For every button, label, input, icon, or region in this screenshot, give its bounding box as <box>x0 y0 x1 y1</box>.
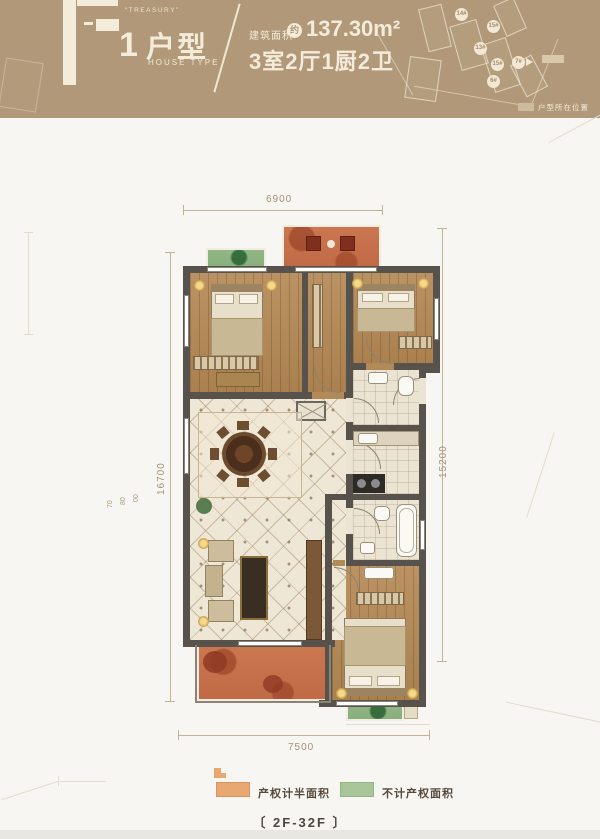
sketch-line <box>506 702 600 724</box>
sketch-line <box>548 114 600 143</box>
unit-index: 1 <box>119 26 138 65</box>
siteplan-building <box>493 0 527 37</box>
dim-left-seg: 00 <box>133 494 140 502</box>
balcony-plant <box>203 651 227 673</box>
unit-type-en: HOUSE TYPE <box>148 58 219 67</box>
balcony-chair <box>306 236 321 251</box>
sofa <box>205 565 223 597</box>
window <box>420 520 425 550</box>
nightstand-lamp <box>194 280 205 291</box>
siteplan-building <box>404 56 442 102</box>
dim-tick <box>165 252 175 253</box>
siteplan-building <box>0 57 44 112</box>
bed-blanket <box>357 308 415 332</box>
tv-cabinet <box>306 540 322 640</box>
building-label-6: 6# <box>487 75 500 88</box>
toilet <box>398 376 414 396</box>
dim-tick <box>437 661 447 662</box>
balcony-plant <box>263 675 283 693</box>
window <box>336 701 398 706</box>
dim-bottom-label: 7500 <box>288 742 314 753</box>
balcony-chair <box>340 236 355 251</box>
ac-platform <box>404 705 418 719</box>
highlight-swatch <box>542 55 564 63</box>
sketch-line <box>346 724 430 725</box>
dim-left-label: 16700 <box>156 462 167 495</box>
sketch-line <box>1 781 58 800</box>
bed-pillow <box>215 294 234 304</box>
dim-tick <box>165 701 175 702</box>
window <box>207 267 267 272</box>
dim-left-seg: 70 <box>107 500 114 508</box>
siteplan-inset: 14# 15# 13# 15# 7# 6# 户型所在位置 <box>395 0 600 118</box>
door-gap <box>312 392 344 399</box>
wardrobe-master <box>356 592 404 605</box>
building-label-7: 7# <box>512 56 525 69</box>
nightstand-lamp <box>352 278 363 289</box>
plant <box>196 498 212 514</box>
bed-pillow <box>239 294 258 304</box>
window <box>434 298 439 340</box>
armchair <box>208 540 234 562</box>
bathtub-inner <box>399 508 414 553</box>
building-label-13: 13# <box>474 42 487 55</box>
door-gap <box>346 508 353 534</box>
dim-tick <box>429 730 430 740</box>
kitchen-sink <box>358 433 378 444</box>
sketch-line <box>60 781 106 782</box>
dim-tick <box>437 228 447 229</box>
bed-master <box>344 618 406 696</box>
dining-table <box>222 432 266 476</box>
legend-step-icon <box>214 773 226 778</box>
sketch-line <box>24 334 33 335</box>
bed-headboard <box>211 284 263 292</box>
stove-burner <box>357 479 366 488</box>
vanity <box>364 567 394 579</box>
legend-orange-label: 产权计半面积 <box>258 785 330 801</box>
divider-slash <box>213 4 240 93</box>
bed-headboard <box>357 284 415 291</box>
bed-pillow <box>349 676 372 686</box>
dim-top-label: 6900 <box>266 194 292 205</box>
dining-chair <box>210 448 219 460</box>
bed-blanket <box>211 318 263 356</box>
logo-bar <box>84 22 93 25</box>
bed-topright <box>357 284 415 332</box>
location-legend-swatch <box>518 103 534 111</box>
logo-bar <box>96 19 119 31</box>
dim-line-left <box>170 252 171 702</box>
header-banner: F “TREASURY” 1 户型 HOUSE TYPE 建筑面积 约 137.… <box>0 0 600 118</box>
balcony-slider-window <box>238 641 302 646</box>
approx-badge: 约 <box>287 23 302 38</box>
sketch-line <box>28 232 29 334</box>
siteplan-building <box>418 4 452 52</box>
bed-topleft <box>211 284 263 356</box>
area-value: 137.30m² <box>306 16 400 42</box>
dim-tick <box>183 205 184 215</box>
legend-green-swatch <box>340 782 374 797</box>
balcony-table <box>327 240 335 248</box>
stove <box>353 474 385 493</box>
door-gap <box>366 363 394 370</box>
bed-blanket <box>344 626 406 666</box>
bed-pillow <box>362 293 383 302</box>
bed-pillow <box>377 676 400 686</box>
building-label-15b: 15# <box>491 58 504 71</box>
desk <box>216 372 260 387</box>
nightstand-lamp <box>418 278 429 289</box>
wall-segment <box>325 494 426 500</box>
legend-orange-swatch <box>216 782 250 797</box>
balcony-wall <box>329 645 331 703</box>
dim-right-label: 15200 <box>438 445 449 478</box>
rooms-text: 3室2厅1厨2卫 <box>249 44 394 76</box>
bath-sink <box>360 542 375 554</box>
wardrobe-topright <box>398 336 432 349</box>
stove-burner <box>371 479 380 488</box>
dim-left-seg: 80 <box>120 497 127 505</box>
door-gap <box>346 398 353 422</box>
brand-slogan: “TREASURY” <box>125 7 180 14</box>
wall-segment <box>346 560 426 566</box>
balcony-top <box>282 225 381 269</box>
dim-line-bottom <box>178 735 430 736</box>
window <box>184 295 189 347</box>
bed-pillow <box>388 293 409 302</box>
nightstand-lamp <box>336 688 347 699</box>
bathtub <box>396 504 417 557</box>
toilet <box>374 506 390 521</box>
door-gap <box>333 560 345 566</box>
dining-chair <box>237 421 249 430</box>
balcony-wall <box>195 645 197 703</box>
floorplan-page: F “TREASURY” 1 户型 HOUSE TYPE 建筑面积 约 137.… <box>0 0 600 839</box>
floor-lamp <box>198 538 209 549</box>
window <box>295 267 377 272</box>
bath-sink <box>368 372 388 384</box>
logo-bar <box>77 0 118 6</box>
dim-line-top <box>183 210 383 211</box>
entry-door-gap <box>419 378 426 404</box>
location-legend-label: 户型所在位置 <box>538 102 589 113</box>
floor-range-note: 〔 2F-32F 〕 <box>252 812 347 831</box>
logo-bar <box>63 0 76 85</box>
balcony-bottom <box>197 645 329 701</box>
building-label-14: 14# <box>455 8 468 21</box>
hall-shelf <box>312 284 323 348</box>
building-label-15a: 15# <box>487 20 500 33</box>
nightstand-lamp <box>266 280 277 291</box>
nightstand-lamp <box>407 688 418 699</box>
coffee-table <box>240 556 268 620</box>
window <box>184 418 189 474</box>
sketch-line <box>526 432 555 518</box>
dining-chair <box>237 478 249 487</box>
floor-lamp <box>198 616 209 627</box>
dim-tick <box>382 205 383 215</box>
legend-green-label: 不计产权面积 <box>382 785 454 801</box>
dining-chair <box>268 448 277 460</box>
door-gap <box>346 440 353 474</box>
wardrobe-topleft <box>193 356 259 370</box>
page-bottom-strip <box>0 830 600 839</box>
wall-segment <box>302 266 308 399</box>
dim-tick <box>178 730 179 740</box>
location-arrow-icon <box>526 58 533 66</box>
balcony-wall <box>195 701 331 703</box>
armchair <box>208 600 234 622</box>
sketch-line <box>24 232 33 233</box>
bed-headboard <box>344 688 406 696</box>
